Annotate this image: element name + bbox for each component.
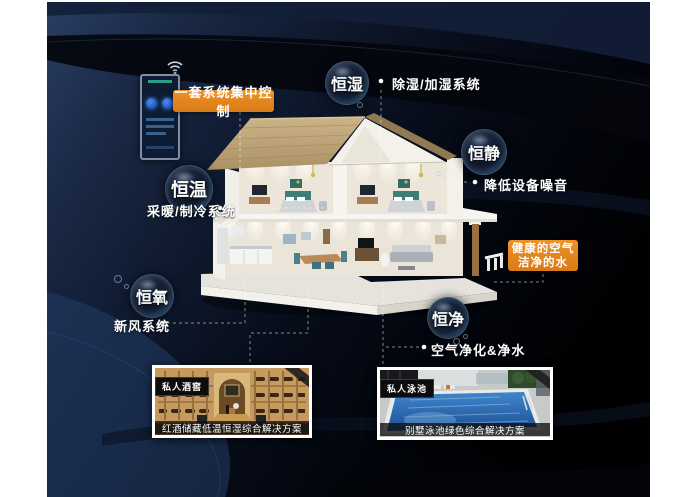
bubble-heng-jing2: 恒净 — [427, 297, 469, 339]
panel-readout — [146, 146, 174, 149]
panel-button-right — [162, 98, 173, 109]
wine-cellar-caption: 红酒储藏低温恒湿综合解决方案 — [155, 421, 309, 434]
roof — [207, 113, 457, 170]
pool-caption: 别墅泳池绿色综合解决方案 — [380, 423, 550, 436]
desc-heng-shi: 除湿/加湿系统 — [392, 74, 481, 93]
house-illustration — [195, 108, 507, 320]
desc-heng-jing: 降低设备噪音 — [484, 175, 568, 194]
upper-right-wall — [447, 158, 463, 218]
deco-bubble — [114, 275, 122, 283]
panel-button-left — [146, 98, 157, 109]
bubble-heng-shi-label: 恒湿 — [331, 71, 363, 95]
desc-heng-wen: 采暖/制冷系统 — [147, 201, 236, 220]
panel-readout — [146, 125, 174, 128]
wine-cellar-tag: 私人酒窖 — [155, 377, 209, 396]
panel-titlebar — [148, 80, 172, 83]
panel-readout — [146, 118, 174, 121]
highlight-line2: 洁净的水 — [518, 256, 568, 270]
healthy-air-water-box: 健康的空气 洁净的水 — [508, 240, 578, 271]
bubble-heng-yang: 恒氧 — [130, 274, 174, 318]
central-control-label: 一套系统集中控制 — [173, 90, 274, 112]
bubble-heng-jing: 恒静 — [461, 129, 507, 175]
bubble-heng-wen-label: 恒温 — [171, 176, 207, 202]
desc-heng-yang: 新风系统 — [114, 316, 170, 335]
bubble-heng-jing2-label: 恒净 — [432, 306, 464, 330]
bubble-heng-shi: 恒湿 — [325, 61, 369, 105]
wifi-icon — [165, 58, 185, 74]
panel-readout — [146, 132, 166, 135]
deco-bubble — [357, 102, 363, 108]
pool-photo: 私人泳池 别墅泳池绿色综合解决方案 — [377, 367, 553, 440]
divider-wall — [333, 162, 347, 214]
deco-bubble — [124, 284, 129, 289]
wine-cellar-photo: 私人酒窖 红酒储藏低温恒湿综合解决方案 — [152, 365, 312, 438]
infographic-canvas: 一套系统集中控制 健康的空气 洁净的水 恒湿 恒静 恒温 恒氧 恒净 除湿/加湿… — [47, 2, 650, 497]
highlight-line1: 健康的空气 — [512, 242, 575, 256]
pool-tag: 私人泳池 — [380, 379, 434, 398]
deco-bubble — [436, 171, 441, 176]
central-control-text: 一套系统集中控制 — [173, 82, 274, 120]
bubble-heng-jing-label: 恒静 — [468, 140, 500, 164]
bubble-heng-yang-label: 恒氧 — [136, 284, 168, 308]
porch — [469, 220, 503, 276]
desc-heng-jing2: 空气净化&净水 — [431, 340, 525, 359]
deco-bubble — [463, 334, 468, 339]
